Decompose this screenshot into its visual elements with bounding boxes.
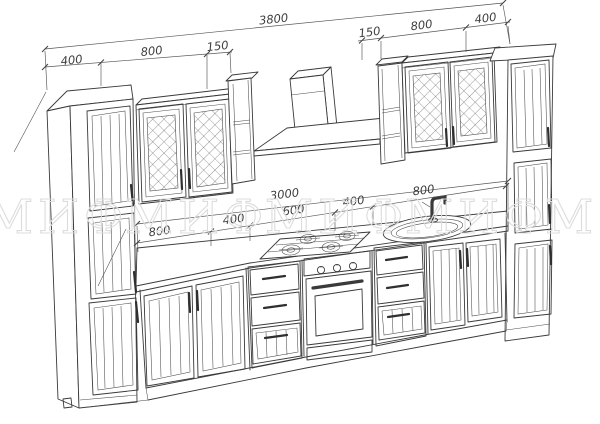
plinth [79, 320, 507, 408]
drawing-canvas: 3800 400 800 150 150 800 400 3000 800 40… [0, 0, 600, 424]
door-handle [446, 129, 447, 146]
oven-window [315, 289, 363, 336]
watermark-text: МИФ [405, 190, 548, 245]
drawer-handle [388, 314, 409, 317]
left-tall-cabinet [47, 85, 138, 408]
oven-handle [313, 281, 362, 288]
drawer-handle [387, 285, 408, 288]
oven [302, 251, 373, 360]
door-handle [189, 169, 190, 188]
dim-label-right-shelf-width: 150 [358, 24, 381, 41]
door-handle [460, 251, 461, 268]
watermark-row: МИФ МИФ МИФ МИФ МИФ [0, 190, 600, 245]
watermark-text: МИФ [265, 190, 408, 245]
right-wall-cabinet [402, 47, 500, 153]
left-wall-cabinet [136, 88, 236, 204]
dim-label-right-tall-width: 400 [474, 10, 497, 27]
watermark-text: МИФ [545, 190, 600, 245]
base-cabinet-doors-800 [140, 268, 250, 388]
wall-corner-line [14, 92, 46, 152]
dim-label-left-wall-cab-width: 800 [140, 43, 163, 59]
lattice-glass-panel [194, 109, 225, 187]
drawer-cabinet-left-400 [248, 261, 302, 368]
drawer-cabinet-right-400 [374, 242, 426, 346]
watermark-text: МИФ [0, 190, 128, 245]
lattice-glass-panel [458, 68, 487, 136]
drawer-handle [386, 257, 407, 260]
lattice-glass-panel [413, 73, 443, 142]
lattice-glass-panel [147, 115, 178, 191]
door-handle [453, 127, 454, 144]
drawer-handle [263, 276, 285, 279]
dim-label-right-wall-cab-width: 800 [410, 17, 433, 34]
sink-cabinet-800 [426, 233, 507, 334]
door-handle [181, 170, 182, 189]
kitchen-technical-drawing: 3800 400 800 150 150 800 400 3000 800 40… [0, 0, 600, 424]
door-handle [197, 291, 198, 310]
door-handle [548, 128, 549, 146]
drawer-handle [265, 335, 287, 338]
door-handle [189, 293, 190, 312]
door-handle [467, 249, 468, 266]
door-handle [550, 246, 551, 264]
dim-label-left-tall-width: 400 [60, 52, 83, 68]
dim-label-left-shelf-width: 150 [206, 38, 229, 54]
drawer-handle [264, 305, 286, 308]
watermark-text: МИФ [125, 190, 268, 245]
